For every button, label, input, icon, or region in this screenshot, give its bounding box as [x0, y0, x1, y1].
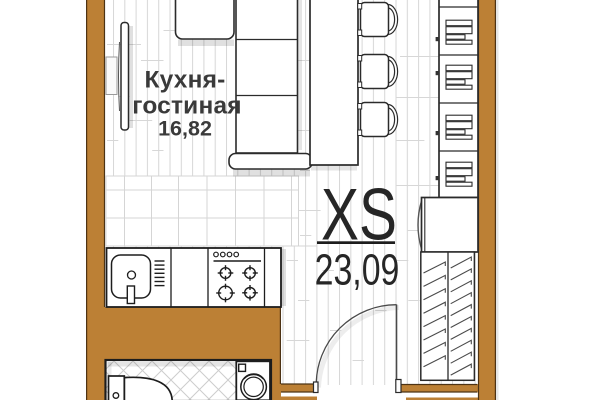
svg-text:16,82: 16,82: [158, 117, 212, 141]
svg-text:23,09: 23,09: [315, 245, 400, 294]
svg-text:гостиная: гостиная: [132, 93, 242, 120]
svg-text:Кухня-: Кухня-: [145, 67, 226, 94]
